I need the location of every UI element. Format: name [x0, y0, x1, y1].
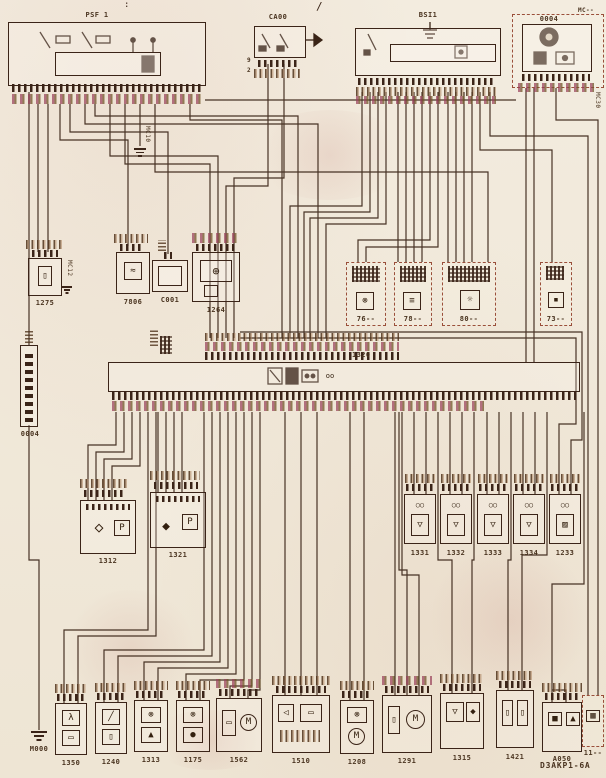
b1208-pin-strip [342, 691, 372, 698]
module-grid-icon: ▦ [586, 710, 600, 722]
bsi1-pin-strip [358, 78, 494, 85]
diamond-valve-icon: ◆ [156, 516, 176, 536]
psf1-pin-labels [12, 94, 202, 104]
dashed-80-label: 80-- [460, 316, 478, 323]
injector-pin-labels [514, 474, 544, 483]
valve-coil-icon: ○○ [555, 500, 575, 510]
b1291-pin-labels [382, 676, 432, 685]
sensor-curve-icon: ≈ [124, 262, 142, 280]
cluster-pin-strip [522, 74, 590, 81]
injector-icon: ▽ [520, 514, 538, 536]
ground-bar [37, 739, 42, 741]
ecu-connector-icon: oo [322, 371, 338, 382]
ground-symbol-m000 [31, 731, 47, 742]
ecu-label: 1320 [352, 352, 370, 359]
ecu-side-connector-tag [150, 330, 158, 346]
b1208-pin-labels [340, 681, 374, 690]
b1313-label: 1313 [142, 757, 160, 764]
filter-element-icon: ▯ [517, 700, 528, 726]
b1510-label: 1510 [292, 758, 310, 765]
cluster-pin-labels [518, 83, 594, 92]
b1291-pin-strip [385, 686, 429, 693]
ground-bar [34, 735, 44, 737]
amplifier-icon: ◁ [278, 704, 294, 722]
b1421-label: 1421 [506, 754, 524, 761]
b1175-pin-strip [178, 691, 208, 698]
b1421-pin-strip [499, 681, 531, 688]
cluster-corner-tag: MC-- [578, 8, 594, 14]
ground-bar [62, 286, 72, 288]
pickup-icon: ▲ [141, 727, 161, 743]
motor-icon: M [348, 728, 365, 745]
fan-icon: ⊗ [183, 707, 203, 723]
b1313-pin-strip [136, 691, 166, 698]
ground-bar [64, 289, 70, 291]
cluster-label: 0004 [540, 16, 558, 23]
b1510-pin-strip [276, 686, 326, 693]
fan-icon: ⊗ [356, 292, 374, 310]
ca00-pin-strip [258, 60, 298, 67]
c1275-pin-labels [26, 240, 62, 249]
c1321-label: 1321 [169, 552, 187, 559]
psf1-label: PSF 1 [85, 12, 108, 19]
ecu-bottom-pin-labels [112, 401, 484, 411]
diagram-reference-code: D3AKP1-6A [540, 762, 591, 770]
mc12-tag: MC12 [66, 260, 72, 276]
ba050-pin-strip [545, 693, 579, 700]
b1510-pin-labels [272, 676, 330, 685]
ground-symbol-mc12 [62, 286, 72, 294]
left-connector-tag-fuzz [25, 330, 33, 343]
handwritten-dots-mark: : [124, 0, 129, 10]
b1421-pin-labels [496, 671, 534, 680]
c7806-pin-labels [114, 234, 148, 243]
dashed-78-label: 78-- [404, 316, 422, 323]
c001-inner-box [158, 266, 182, 286]
valve-coil-icon: ○○ [410, 500, 430, 510]
ecu-top-pin-labels [205, 342, 399, 351]
ground-bar [136, 152, 144, 154]
heater-grid-icon: ≡ [403, 292, 421, 310]
b1175-label: 1175 [184, 757, 202, 764]
b11-label: 11-- [584, 750, 602, 757]
relay-block-icon: ■ [548, 712, 562, 726]
valve-coil-icon: ○○ [519, 500, 539, 510]
pressure-icon: P [182, 514, 198, 530]
c1321-pin-labels [150, 471, 200, 480]
c1264-label: 1264 [207, 307, 225, 314]
ground-bar [31, 731, 47, 733]
sensor-dot-icon: ● [183, 727, 203, 743]
injector-label: 1332 [447, 550, 465, 557]
small-module-icon: ▪ [548, 292, 564, 308]
gear-icon: ☼ [460, 290, 480, 310]
ba050-pin-labels [542, 683, 582, 692]
dashed-80-pin-block [448, 266, 490, 282]
psf1-pin-strip [12, 84, 202, 92]
b1240-label: 1240 [102, 759, 120, 766]
bsi1-pin-labels [356, 96, 496, 104]
c1233-label: 1233 [556, 550, 574, 557]
mc10-tag: MC10 [144, 126, 150, 142]
handwritten-slash-mark: / [316, 0, 323, 13]
resistor-icon: ▯ [388, 706, 400, 734]
injector-pin-strip [442, 484, 470, 491]
cluster-inner-box [522, 24, 592, 72]
valve-coil-icon: ○○ [483, 500, 503, 510]
b1562-pin-strip [219, 689, 259, 696]
motor-icon: M [406, 710, 425, 729]
dashed-73-pin-block [546, 266, 564, 280]
component-1320-ecu [108, 362, 580, 392]
bsi1-inner-module [390, 44, 496, 62]
c1264-pin-strip [196, 244, 236, 251]
resistor-icon: ▭ [222, 710, 236, 736]
ca00-pin-tag: 9 [247, 58, 251, 64]
ground-m000-label: M000 [30, 746, 48, 753]
buzzer-icon: ▲ [566, 712, 580, 726]
injector-icon: ▽ [447, 514, 465, 536]
wiring-diagram-page: / : PSF 1 CA00 9 2 BSI1 0004 MC-- MC30 0… [0, 0, 606, 778]
left-connector-label: 0004 [21, 431, 39, 438]
injector-pin-strip [479, 484, 507, 491]
diamond-valve-icon: ◇ [88, 516, 110, 538]
ca00-pin-tag: 2 [247, 68, 251, 74]
dashed-78-pin-block [400, 266, 426, 282]
b1350-pin-labels [55, 684, 87, 693]
psf1-inner-module [55, 52, 161, 76]
injector-label: 1331 [411, 550, 429, 557]
component-ca00-ignition-switch [254, 26, 306, 58]
b1350-label: 1350 [62, 760, 80, 767]
left-connector-pins [25, 350, 33, 422]
b1562-pin-labels [216, 679, 262, 688]
c1321-pin-strip [154, 482, 198, 489]
c1233-pin-labels [550, 474, 580, 483]
injector-pin-strip [515, 484, 543, 491]
coil-module-icon: ▨ [556, 514, 574, 536]
bsi1-pin-labels [356, 87, 496, 96]
c001-pin-strip [164, 252, 172, 259]
b1350-pin-strip [57, 694, 85, 701]
c1275-pin-strip [32, 250, 58, 257]
resistor-icon: ▯ [38, 266, 52, 286]
c1264-pin-labels [192, 233, 240, 243]
b1315-pin-strip [443, 684, 481, 691]
c1264-sub-icon [204, 285, 218, 297]
c7806-pin-strip [120, 244, 144, 251]
b1291-label: 1291 [398, 758, 416, 765]
module-icon: ▭ [300, 704, 322, 722]
b1562-label: 1562 [230, 757, 248, 764]
c1312-inner-pins [86, 504, 130, 510]
b1240-pin-strip [97, 693, 125, 700]
ecu-bottom-pin-strip [112, 392, 576, 400]
c1312-pin-labels [80, 479, 128, 488]
component-a050 [542, 702, 582, 752]
injector-icon: ▽ [446, 702, 464, 722]
b1510-inner-detail [280, 730, 320, 742]
c1321-inner-pins [156, 496, 200, 502]
injector-pin-strip [406, 484, 434, 491]
motor-icon: M [240, 714, 257, 731]
ecu-top-pin-labels [205, 333, 399, 341]
injector-pin-labels [478, 474, 508, 483]
b1313-pin-labels [134, 681, 168, 690]
fan-icon: ⊗ [347, 707, 367, 723]
dashed-73-label: 73-- [547, 316, 565, 323]
injector-label: 1334 [520, 550, 538, 557]
throttle-motor-icon: ⊕ [208, 263, 224, 279]
bsi1-label: BSI1 [419, 12, 437, 19]
dashed-76-pin-block [352, 266, 380, 282]
filter-element-icon: ▯ [502, 700, 513, 726]
b1315-label: 1315 [453, 755, 471, 762]
ca00-label: CA00 [269, 14, 287, 21]
b1208-label: 1208 [348, 759, 366, 766]
injector-label: 1333 [484, 550, 502, 557]
c001-label: C001 [161, 297, 179, 304]
ground-bar [66, 292, 69, 294]
pressure-icon: P [114, 520, 130, 536]
ground-symbol-mc10 [134, 148, 146, 157]
c1233-pin-strip [551, 484, 579, 491]
ca00-pin-labels [254, 69, 300, 78]
heater-element-icon: ▭ [62, 730, 80, 746]
c1312-pin-strip [84, 490, 124, 497]
c7806-label: 7806 [124, 299, 142, 306]
ground-bar [134, 148, 146, 150]
injector-pin-labels [405, 474, 435, 483]
b1315-pin-labels [440, 674, 484, 683]
dashed-76-label: 76-- [357, 316, 375, 323]
injector-icon: ▽ [484, 514, 502, 536]
valve-coil-icon: ○○ [446, 500, 466, 510]
gauge-icon: ◆ [466, 702, 480, 722]
b1175-pin-labels [176, 681, 210, 690]
b1240-pin-labels [95, 683, 127, 692]
cluster-side-tag: MC30 [594, 92, 600, 108]
injector-icon: ▽ [411, 514, 429, 536]
c1275-label: 1275 [36, 300, 54, 307]
injector-pin-labels [441, 474, 471, 483]
ground-bar [138, 155, 142, 157]
ecu-side-connector [160, 336, 172, 354]
c1312-label: 1312 [99, 558, 117, 565]
lambda-sensor-icon: λ [62, 710, 80, 726]
c001-tag-fuzz [158, 240, 166, 251]
variable-resistor-icon: ╱ [102, 709, 120, 725]
fan-icon: ⊗ [141, 707, 161, 723]
thermometer-icon: ▯ [102, 729, 120, 745]
